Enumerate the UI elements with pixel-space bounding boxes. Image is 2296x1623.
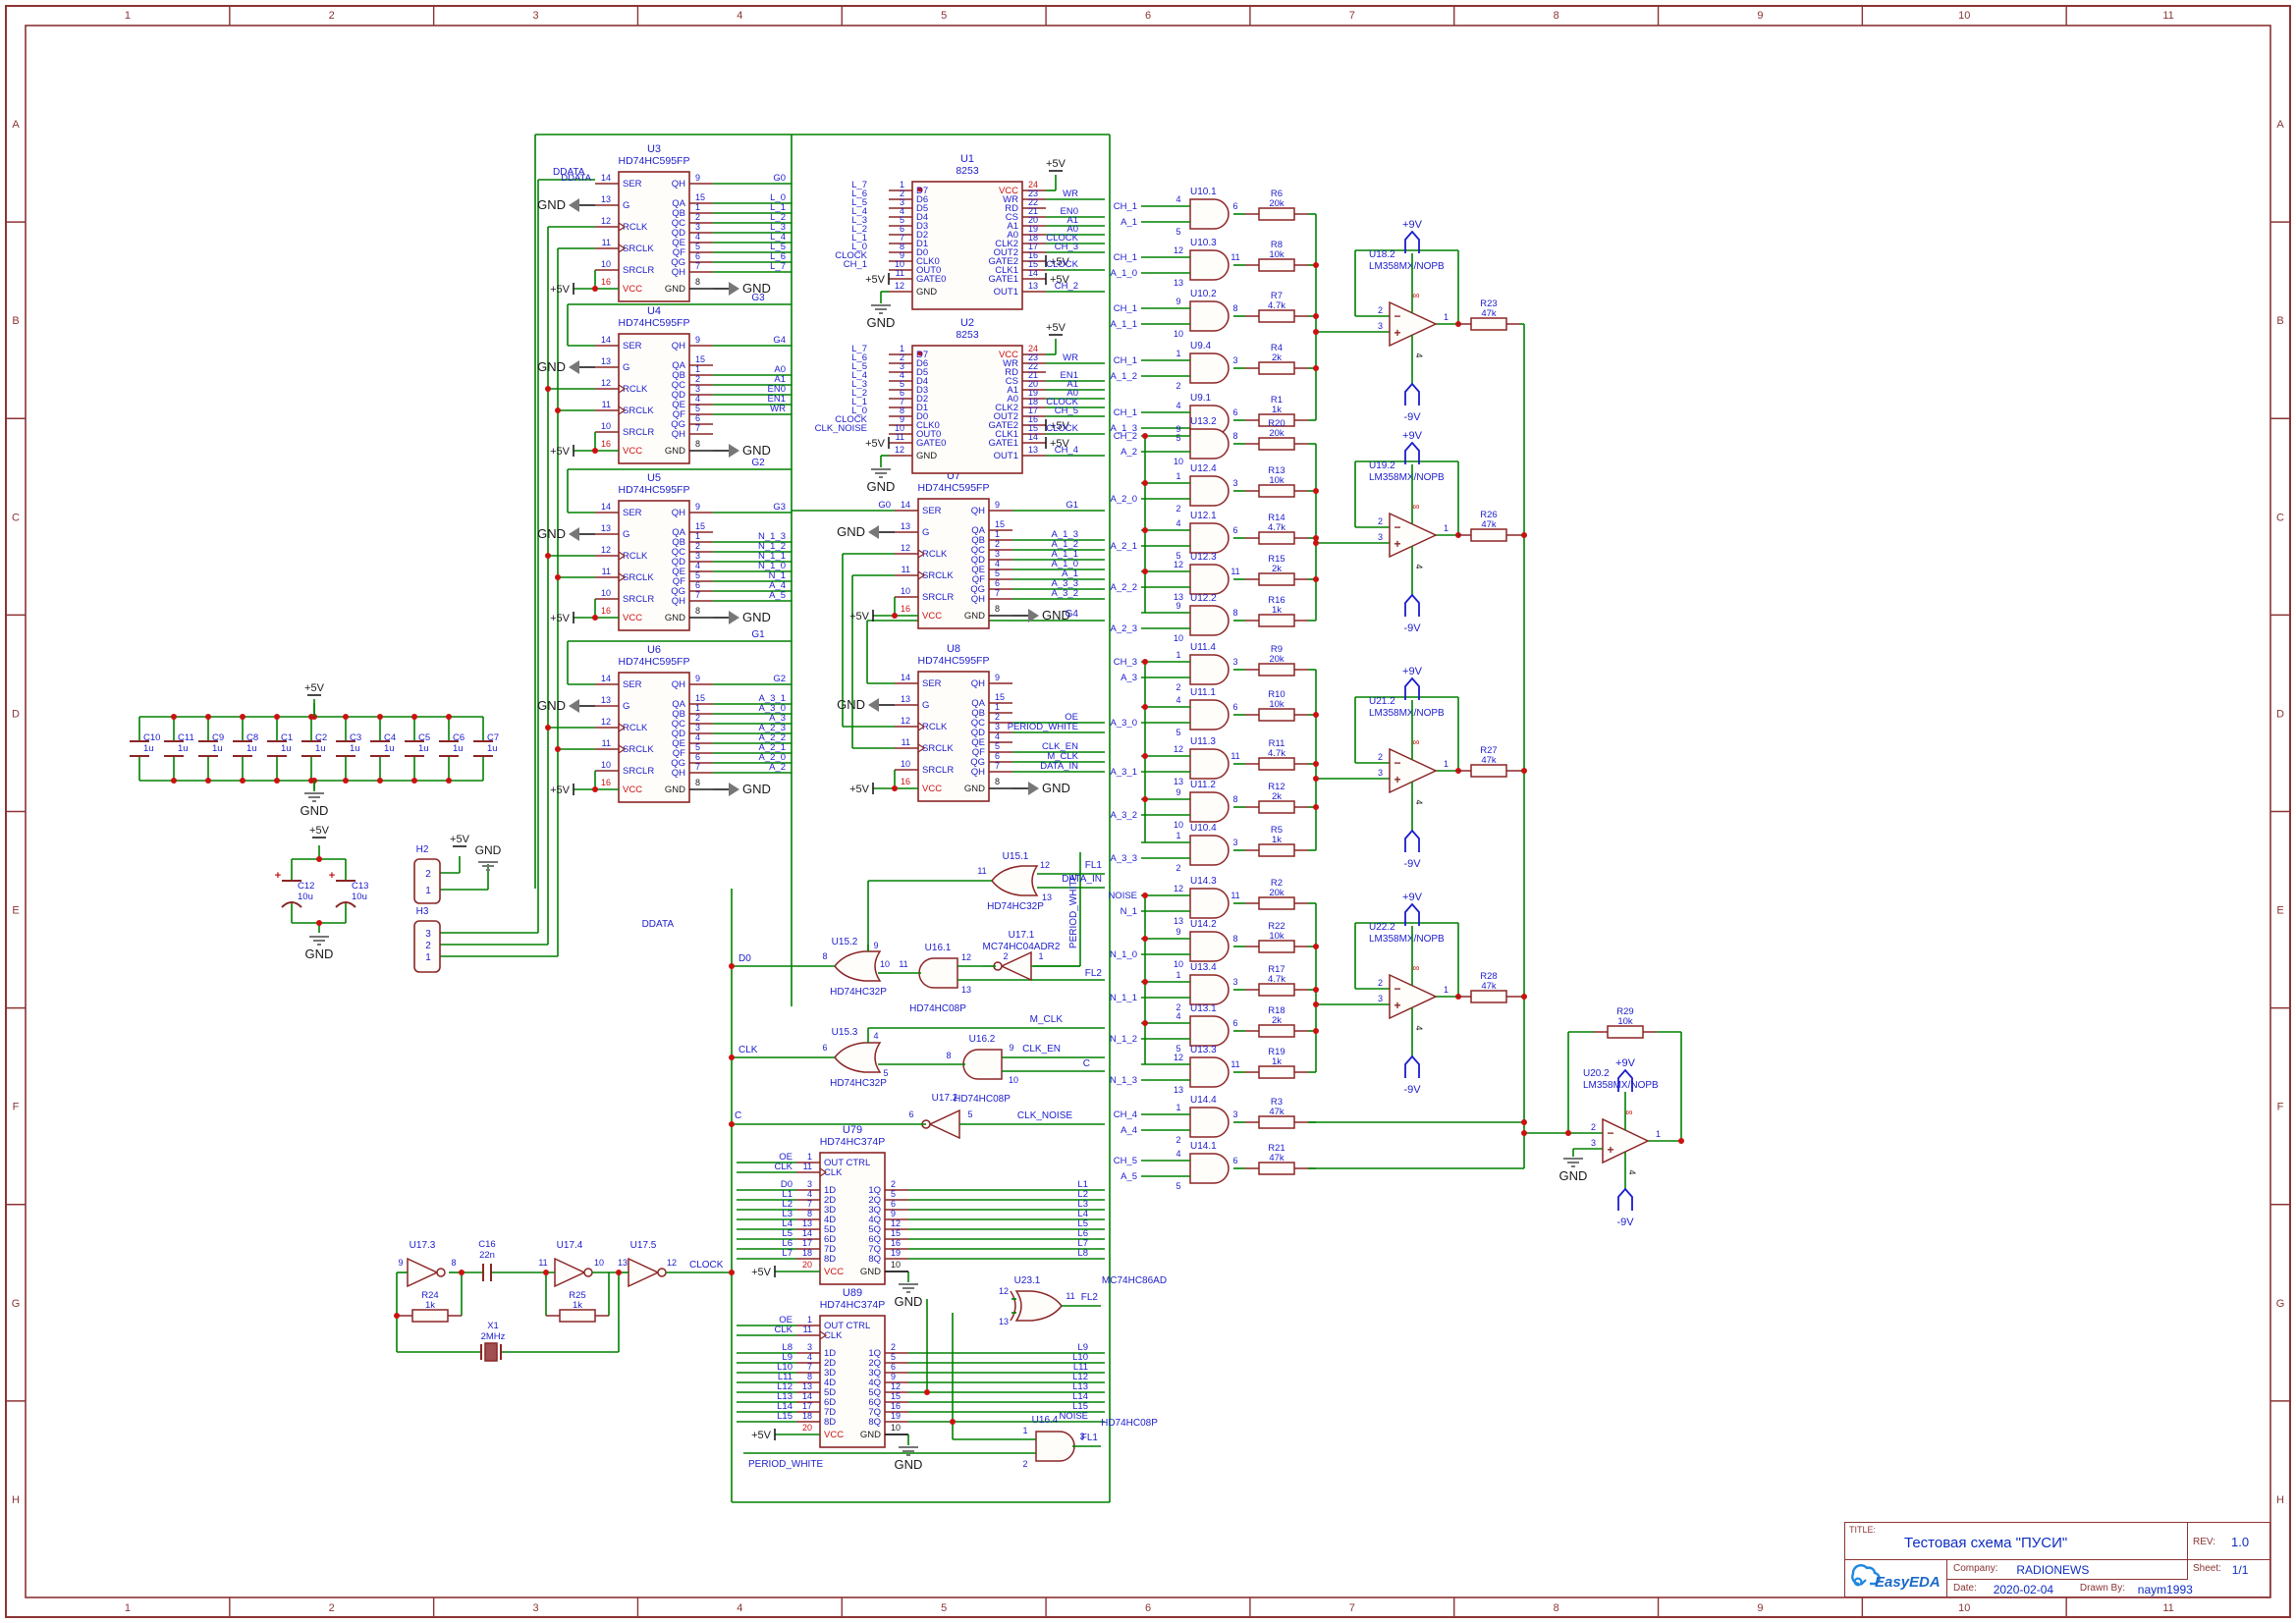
- svg-text:3: 3: [807, 1342, 812, 1352]
- svg-text:1: 1: [695, 364, 700, 374]
- svg-text:47k: 47k: [1481, 981, 1497, 992]
- svg-text:2: 2: [1378, 978, 1383, 988]
- schematic-page: +5VGND11223344556677889910101111AABBCCDD…: [0, 0, 2296, 1623]
- svg-text:SRCLK: SRCLK: [623, 572, 654, 583]
- svg-text:11: 11: [538, 1258, 547, 1268]
- capacitor-bank[interactable]: C101uC111uC91uC81uC11uC21uC31uC41uC51uC6…: [130, 682, 499, 818]
- gate-U12.1[interactable]: U12.145A_2_16: [1111, 511, 1245, 561]
- resistor-R4[interactable]: R42k: [1245, 343, 1316, 374]
- svg-text:QH: QH: [672, 179, 685, 189]
- svg-text:SRCLR: SRCLR: [623, 265, 654, 276]
- gate-U17.4[interactable]: 1110U17.4: [536, 1240, 619, 1286]
- svg-text:47k: 47k: [1481, 308, 1497, 319]
- svg-text:U17.5: U17.5: [630, 1240, 657, 1251]
- svg-text:1u: 1u: [350, 743, 360, 754]
- resistor-R27[interactable]: R2747k: [1457, 745, 1524, 777]
- gate-U13.4[interactable]: U13.412N_1_13: [1110, 962, 1245, 1012]
- svg-text:GND: GND: [867, 479, 896, 494]
- svg-text:10: 10: [594, 1258, 604, 1268]
- resistor-R25[interactable]: R251k: [546, 1290, 609, 1322]
- svg-text:G: G: [12, 1298, 21, 1310]
- resistor-R8[interactable]: R810k: [1245, 240, 1316, 271]
- svg-text:13: 13: [601, 356, 611, 366]
- resistor-R23[interactable]: R2347k: [1457, 298, 1524, 330]
- svg-text:14: 14: [802, 1228, 812, 1238]
- svg-text:-9V: -9V: [1616, 1217, 1634, 1228]
- resistor-R17[interactable]: R174.7k: [1245, 964, 1316, 996]
- svg-text:16: 16: [901, 777, 910, 786]
- svg-text:G3: G3: [751, 293, 765, 303]
- svg-text:+5V: +5V: [309, 825, 330, 837]
- svg-text:C3: C3: [350, 732, 361, 743]
- svg-text:U11.3: U11.3: [1190, 736, 1216, 747]
- svg-text:3: 3: [995, 549, 1000, 559]
- svg-text:G4: G4: [773, 335, 786, 346]
- svg-text:D: D: [12, 708, 20, 720]
- svg-text:CH_1: CH_1: [1114, 355, 1137, 366]
- svg-text:G: G: [922, 527, 929, 538]
- svg-text:U17.4: U17.4: [557, 1240, 583, 1251]
- svg-text:11: 11: [1230, 1059, 1239, 1069]
- svg-text:2: 2: [1175, 504, 1180, 514]
- svg-text:4: 4: [695, 732, 700, 742]
- svg-text:PERIOD_WHITE: PERIOD_WHITE: [1068, 874, 1079, 948]
- gate-U11.1[interactable]: U11.145A_3_06: [1111, 687, 1245, 737]
- gate-U17.1[interactable]: 21U17.1MC74HC04ADR2: [983, 930, 1080, 980]
- svg-text:1: 1: [425, 886, 431, 896]
- svg-text:10: 10: [1958, 10, 1970, 22]
- svg-text:9: 9: [873, 941, 878, 950]
- svg-text:C5: C5: [418, 732, 430, 743]
- svg-text:GATE0: GATE0: [916, 274, 946, 285]
- svg-text:22n: 22n: [479, 1250, 495, 1261]
- svg-text:1: 1: [1444, 523, 1449, 533]
- date-value: 2020-02-04: [1994, 1580, 2053, 1596]
- gate-U11.4[interactable]: U11.412CH_3A_33: [1114, 642, 1245, 692]
- resistor-R11[interactable]: R114.7k: [1245, 738, 1316, 770]
- svg-text:RCLK: RCLK: [623, 723, 648, 733]
- svg-text:CH_1: CH_1: [844, 259, 867, 270]
- svg-text:2: 2: [1175, 381, 1180, 391]
- svg-text:12: 12: [895, 445, 904, 455]
- svg-text:L_7: L_7: [770, 261, 786, 272]
- svg-text:8: 8: [695, 778, 700, 787]
- svg-text:20k: 20k: [1269, 198, 1285, 209]
- chip-U7[interactable]: U7HD74HC595FP14SERG013GGND12RCLK11SRCLK1…: [837, 470, 1105, 628]
- svg-text:NOISE: NOISE: [1059, 1411, 1088, 1422]
- svg-text:WR: WR: [770, 404, 786, 414]
- chip-U2[interactable]: U282531D7L_72D6L_63D5L_54D4L_45D3L_36D2L…: [815, 317, 1105, 494]
- gate-U14.2[interactable]: U14.2910N_1_08: [1110, 919, 1245, 969]
- gate-U14.4[interactable]: U14.412CH_4A_43: [1114, 1095, 1245, 1145]
- chip-U6[interactable]: U6HD74HC595FP14SER13GGND12RCLK11SRCLK10S…: [537, 644, 792, 802]
- svg-text:3: 3: [695, 551, 700, 561]
- svg-text:H: H: [12, 1494, 20, 1506]
- resistor-R14[interactable]: R144.7k: [1245, 513, 1316, 544]
- svg-text:B: B: [2276, 315, 2283, 327]
- crystal-X1[interactable]: X12MHz: [481, 1321, 506, 1361]
- svg-text:5: 5: [967, 1109, 972, 1119]
- svg-text:1u: 1u: [418, 743, 429, 754]
- svg-text:GND: GND: [742, 782, 771, 796]
- svg-text:GND: GND: [916, 451, 937, 461]
- svg-text:12: 12: [999, 1286, 1009, 1296]
- svg-text:5: 5: [941, 1602, 947, 1614]
- chip-U4[interactable]: U4HD74HC595FP14SER13GGND12RCLK11SRCLK10S…: [537, 305, 792, 463]
- svg-text:11: 11: [2162, 1602, 2173, 1614]
- chip-U79[interactable]: U79HD74HC374P1OUT CTRLOE11CLKCLK31DD042D…: [737, 1124, 1105, 1309]
- svg-text:1: 1: [995, 529, 1000, 539]
- svg-text:3: 3: [532, 1602, 538, 1614]
- svg-text:6: 6: [822, 1043, 827, 1053]
- svg-text:A_3_2: A_3_2: [1052, 588, 1078, 599]
- svg-text:U10.3: U10.3: [1190, 238, 1217, 248]
- resistor-R29[interactable]: R2910k: [1594, 1006, 1657, 1038]
- svg-text:U8: U8: [947, 643, 960, 655]
- svg-text:VCC: VCC: [922, 611, 942, 622]
- svg-text:LM358MX/NOPB: LM358MX/NOPB: [1583, 1080, 1659, 1091]
- gate-U17.3[interactable]: 98U17.3: [397, 1240, 462, 1286]
- svg-text:3: 3: [1378, 768, 1383, 778]
- svg-text:6: 6: [995, 578, 1000, 588]
- svg-text:A_2: A_2: [1121, 447, 1137, 458]
- opamp-U18.2[interactable]: −+231∞4U18.2LM358MX/NOPB+9V-9V: [1316, 219, 1461, 423]
- svg-text:1: 1: [1444, 759, 1449, 769]
- svg-text:12: 12: [601, 378, 611, 388]
- svg-text:A_2_3: A_2_3: [1111, 623, 1137, 634]
- svg-text:C13: C13: [352, 881, 368, 892]
- svg-text:8253: 8253: [956, 165, 979, 177]
- svg-text:8: 8: [1232, 303, 1237, 313]
- svg-text:+: +: [275, 870, 281, 882]
- svg-text:2: 2: [425, 941, 431, 951]
- svg-text:3: 3: [1232, 838, 1237, 847]
- svg-text:9: 9: [1175, 787, 1180, 797]
- svg-text:G1: G1: [751, 629, 765, 640]
- connector-H3[interactable]: H3321: [414, 906, 440, 972]
- svg-text:2: 2: [1175, 682, 1180, 692]
- resistor-R21[interactable]: R2147k: [1245, 1143, 1316, 1174]
- gate-U12.4[interactable]: U12.412A_2_03: [1111, 463, 1245, 514]
- svg-text:U17.1: U17.1: [1009, 930, 1035, 941]
- svg-text:C9: C9: [212, 732, 224, 743]
- opamp-U19.2[interactable]: −+231∞4U19.2LM358MX/NOPB+9V-9V: [1316, 430, 1461, 634]
- svg-text:1: 1: [695, 703, 700, 713]
- svg-text:11: 11: [902, 565, 910, 574]
- resistor-R10[interactable]: R1010k: [1245, 689, 1316, 721]
- gate-U10.4[interactable]: U10.412A_3_33: [1111, 823, 1245, 873]
- svg-text:14: 14: [601, 173, 611, 183]
- resistor-R28[interactable]: R2847k: [1457, 971, 1524, 1002]
- svg-text:6: 6: [891, 1199, 896, 1209]
- svg-text:1k: 1k: [1272, 405, 1282, 415]
- gate-U11.3[interactable]: U11.31213A_3_111: [1111, 736, 1245, 786]
- svg-text:13: 13: [601, 695, 611, 705]
- svg-text:U19.2: U19.2: [1369, 460, 1395, 471]
- resistor-R3[interactable]: R347k: [1245, 1097, 1316, 1128]
- resistor-R26[interactable]: R2647k: [1457, 510, 1524, 541]
- sheet-label: Sheet:: [2193, 1560, 2221, 1574]
- svg-text:HD74HC595FP: HD74HC595FP: [918, 482, 990, 494]
- electrolytic-caps[interactable]: +C1210u+C1310u+5VGND: [275, 825, 369, 961]
- svg-text:8: 8: [695, 439, 700, 449]
- svg-text:HD74HC595FP: HD74HC595FP: [619, 484, 690, 496]
- svg-text:HD74HC08P: HD74HC08P: [909, 1003, 966, 1014]
- svg-text:10: 10: [601, 421, 611, 431]
- svg-text:SER: SER: [623, 508, 642, 518]
- svg-text:10: 10: [1174, 329, 1183, 339]
- resistor-R15[interactable]: R152k: [1245, 554, 1316, 585]
- gate-U9.4[interactable]: U9.412CH_1A_1_23: [1111, 341, 1245, 391]
- resistor-R9[interactable]: R920k: [1245, 644, 1316, 676]
- svg-text:11: 11: [1230, 252, 1239, 262]
- chip-U5[interactable]: U5HD74HC595FP14SER13GGND12RCLK11SRCLK10S…: [537, 472, 792, 630]
- svg-text:G0: G0: [878, 500, 891, 511]
- svg-text:SRCLK: SRCLK: [623, 406, 654, 416]
- svg-text:16: 16: [901, 604, 910, 614]
- svg-text:NOISE: NOISE: [1108, 891, 1137, 901]
- svg-text:12: 12: [1174, 1053, 1183, 1062]
- svg-text:13: 13: [1174, 278, 1183, 288]
- svg-text:HD74HC595FP: HD74HC595FP: [619, 155, 690, 167]
- svg-text:C: C: [1083, 1058, 1090, 1069]
- svg-text:−: −: [1394, 520, 1400, 534]
- svg-text:U12.4: U12.4: [1190, 463, 1217, 474]
- svg-text:VCC: VCC: [623, 784, 642, 795]
- svg-text:QH: QH: [672, 596, 685, 607]
- svg-text:CH_2: CH_2: [1114, 431, 1137, 442]
- svg-text:U14.4: U14.4: [1190, 1095, 1217, 1106]
- svg-text:12: 12: [1174, 560, 1183, 569]
- svg-text:U20.2: U20.2: [1583, 1068, 1610, 1079]
- svg-text:13: 13: [802, 1218, 812, 1228]
- svg-text:11: 11: [2162, 10, 2173, 22]
- svg-text:13: 13: [999, 1317, 1009, 1326]
- resistor-R16[interactable]: R161k: [1245, 595, 1316, 626]
- sheet-cell: Sheet: 1/1: [2187, 1560, 2269, 1580]
- resistor-R13[interactable]: R1310k: [1245, 465, 1316, 497]
- resistor-R18[interactable]: R182k: [1245, 1005, 1316, 1037]
- svg-text:16: 16: [891, 1238, 901, 1248]
- svg-text:8: 8: [807, 1372, 812, 1381]
- svg-text:9: 9: [1757, 1602, 1763, 1614]
- connector-H2[interactable]: H221: [414, 844, 440, 903]
- svg-text:E: E: [12, 905, 19, 917]
- resistor-R12[interactable]: R122k: [1245, 782, 1316, 813]
- svg-text:GND: GND: [916, 287, 937, 298]
- svg-text:15: 15: [695, 521, 705, 531]
- svg-text:CLK: CLK: [775, 1162, 793, 1172]
- svg-text:12: 12: [891, 1218, 901, 1228]
- svg-text:2: 2: [995, 539, 1000, 549]
- svg-text:7: 7: [695, 423, 700, 433]
- svg-text:4: 4: [1175, 518, 1180, 528]
- svg-text:6: 6: [1145, 1602, 1151, 1614]
- gate-U10.1[interactable]: U10.145CH_1A_16: [1114, 187, 1245, 237]
- chip-U1[interactable]: U182531D7L_72D6L_63D5L_54D4L_45D3L_36D2L…: [835, 153, 1105, 330]
- easyeda-cloud-icon: EasyEDA: [1845, 1560, 1945, 1595]
- svg-text:2: 2: [329, 1602, 335, 1614]
- svg-text:GATE1: GATE1: [989, 274, 1018, 285]
- svg-text:5: 5: [1175, 433, 1180, 443]
- svg-text:U14.1: U14.1: [1190, 1141, 1217, 1152]
- resistor-R20[interactable]: R2020k: [1245, 418, 1316, 450]
- opamp-U20.2[interactable]: −+231∞4U20.2LM358MX/NOPB+9V-9VGND: [1559, 1057, 1661, 1228]
- svg-text:11: 11: [602, 738, 611, 748]
- svg-text:2k: 2k: [1272, 352, 1282, 363]
- resistor-R2[interactable]: R220k: [1245, 878, 1316, 909]
- gate-U10.3[interactable]: U10.31213CH_1A_1_011: [1111, 238, 1245, 288]
- svg-text:8: 8: [946, 1051, 951, 1060]
- svg-text:VCC: VCC: [922, 784, 942, 794]
- svg-text:C4: C4: [384, 732, 396, 743]
- annotations-layer: +5VGND: [450, 834, 502, 870]
- svg-text:PERIOD_WHITE: PERIOD_WHITE: [1008, 722, 1078, 732]
- svg-text:DDATA: DDATA: [642, 919, 675, 930]
- svg-text:U11.4: U11.4: [1190, 642, 1216, 653]
- svg-text:10k: 10k: [1269, 475, 1285, 486]
- svg-text:8: 8: [807, 1209, 812, 1218]
- svg-text:3: 3: [532, 10, 538, 22]
- svg-text:QH: QH: [672, 267, 685, 278]
- svg-text:GND: GND: [964, 611, 985, 622]
- svg-text:1: 1: [1175, 1103, 1180, 1112]
- svg-text:GND: GND: [305, 947, 334, 961]
- svg-text:H3: H3: [416, 906, 429, 917]
- svg-text:11: 11: [602, 567, 611, 576]
- svg-text:U9.4: U9.4: [1190, 341, 1212, 352]
- svg-text:G: G: [623, 529, 629, 540]
- svg-text:12: 12: [1174, 744, 1183, 754]
- svg-text:D: D: [2276, 708, 2284, 720]
- svg-text:SER: SER: [623, 679, 642, 690]
- chip-U8[interactable]: U8HD74HC595FP14SER13GGND12RCLK11SRCLK10S…: [837, 643, 1105, 801]
- svg-text:3: 3: [1591, 1138, 1596, 1148]
- svg-text:GND: GND: [1042, 781, 1070, 795]
- svg-text:8D: 8D: [824, 1254, 836, 1265]
- svg-text:1k: 1k: [425, 1300, 435, 1311]
- resistor-R5[interactable]: R51k: [1245, 825, 1316, 856]
- svg-text:13: 13: [1174, 1085, 1183, 1095]
- svg-text:U18.2: U18.2: [1369, 249, 1395, 260]
- svg-text:10k: 10k: [1269, 249, 1285, 260]
- schematic-canvas[interactable]: +5VGND11223344556677889910101111AABBCCDD…: [0, 0, 2296, 1623]
- svg-text:9: 9: [891, 1372, 896, 1381]
- resistor-R7[interactable]: R74.7k: [1245, 291, 1316, 322]
- company-label: Company:: [1953, 1560, 1998, 1574]
- gate-U12.3[interactable]: U12.31213A_2_211: [1111, 552, 1245, 602]
- svg-text:4: 4: [873, 1031, 878, 1041]
- svg-text:N_1_0: N_1_0: [1110, 949, 1137, 960]
- svg-text:2: 2: [891, 1342, 896, 1352]
- gate-U13.3[interactable]: U13.31213N_1_311: [1110, 1045, 1245, 1095]
- svg-text:∞: ∞: [1412, 291, 1419, 301]
- drawn-by-label: Drawn By:: [2080, 1580, 2125, 1594]
- svg-text:13: 13: [961, 985, 971, 995]
- svg-text:2: 2: [995, 712, 1000, 722]
- svg-text:U3: U3: [647, 143, 661, 155]
- resistor-R22[interactable]: R2210k: [1245, 921, 1316, 952]
- svg-text:U14.3: U14.3: [1190, 876, 1217, 887]
- svg-text:GND: GND: [665, 784, 685, 795]
- gate-U14.3[interactable]: U14.31213NOISEN_111: [1108, 876, 1245, 926]
- gate-U14.1[interactable]: U14.145CH_5A_56: [1114, 1141, 1245, 1191]
- svg-text:+5V: +5V: [849, 611, 870, 622]
- gate-U12.2[interactable]: U12.2910A_2_38: [1111, 593, 1245, 643]
- gate-U17.5[interactable]: 1312U17.5: [618, 1240, 685, 1286]
- svg-text:CLK_NOISE: CLK_NOISE: [1017, 1110, 1072, 1121]
- svg-text:CLOCK: CLOCK: [1046, 259, 1078, 270]
- resistor-R6[interactable]: R620k: [1245, 189, 1316, 220]
- svg-text:U79: U79: [843, 1124, 862, 1136]
- svg-text:GND: GND: [860, 1430, 881, 1440]
- svg-text:1: 1: [1656, 1129, 1661, 1139]
- opamp-U21.2[interactable]: −+231∞4U21.2LM358MX/NOPB+9V-9V: [1316, 666, 1461, 870]
- svg-text:LM358MX/NOPB: LM358MX/NOPB: [1369, 934, 1445, 945]
- svg-text:8: 8: [1232, 934, 1237, 944]
- svg-text:5: 5: [695, 742, 700, 752]
- svg-text:G0: G0: [773, 173, 786, 184]
- svg-text:HD74HC32P: HD74HC32P: [830, 1078, 887, 1089]
- svg-text:A_3_0: A_3_0: [1111, 718, 1137, 729]
- gate-U11.2[interactable]: U11.2910A_3_28: [1111, 780, 1245, 830]
- gate-U16.1[interactable]: 111213U16.1HD74HC08P: [893, 943, 1105, 1014]
- svg-text:L15: L15: [777, 1411, 793, 1422]
- svg-text:8: 8: [695, 277, 700, 287]
- svg-text:12: 12: [961, 952, 971, 962]
- svg-text:GND: GND: [742, 443, 771, 458]
- svg-text:+5V: +5V: [550, 784, 571, 796]
- svg-text:12: 12: [891, 1381, 901, 1391]
- svg-text:+5V: +5V: [865, 274, 886, 286]
- svg-text:A_2: A_2: [769, 762, 786, 773]
- resistor-R19[interactable]: R191k: [1245, 1047, 1316, 1078]
- svg-text:∞: ∞: [1412, 963, 1419, 974]
- svg-text:-9V: -9V: [1403, 411, 1421, 423]
- svg-text:QH: QH: [971, 678, 985, 689]
- svg-text:U89: U89: [843, 1287, 862, 1299]
- svg-text:GND: GND: [537, 197, 566, 212]
- svg-text:G3: G3: [773, 502, 786, 513]
- svg-text:1: 1: [1175, 831, 1180, 840]
- svg-text:8253: 8253: [956, 329, 979, 341]
- svg-text:GND: GND: [837, 524, 865, 539]
- gate-U10.2[interactable]: U10.2910CH_1A_1_18: [1111, 289, 1245, 339]
- svg-text:13: 13: [802, 1381, 812, 1391]
- svg-text:1u: 1u: [453, 743, 464, 754]
- svg-text:2: 2: [695, 541, 700, 551]
- svg-text:8Q: 8Q: [868, 1417, 881, 1428]
- svg-text:7: 7: [995, 761, 1000, 771]
- svg-text:9: 9: [1175, 297, 1180, 306]
- svg-text:U6: U6: [647, 644, 661, 656]
- gate-U15.3[interactable]: 645U15.3HD74HC32P: [813, 1027, 937, 1089]
- svg-text:1: 1: [1175, 650, 1180, 660]
- svg-text:10: 10: [1009, 1075, 1018, 1085]
- gate-U16.2[interactable]: 8910U16.2HD74HC08P: [937, 1034, 1105, 1105]
- svg-text:WR: WR: [1063, 189, 1078, 199]
- svg-text:+5V: +5V: [751, 1430, 772, 1441]
- svg-text:∞: ∞: [1412, 737, 1419, 748]
- svg-text:10: 10: [901, 759, 910, 769]
- opamp-U22.2[interactable]: −+231∞4U22.2LM358MX/NOPB+9V-9V: [1316, 892, 1461, 1096]
- capacitor-C16[interactable]: C1622n: [478, 1239, 495, 1281]
- svg-text:C10: C10: [143, 732, 160, 743]
- gate-U15.2[interactable]: 8109U15.2HD74HC32P: [813, 937, 893, 998]
- svg-text:U12.2: U12.2: [1190, 593, 1217, 604]
- gate-U13.1[interactable]: U13.145N_1_26: [1110, 1003, 1245, 1054]
- resistor-R24[interactable]: R241k: [399, 1290, 462, 1322]
